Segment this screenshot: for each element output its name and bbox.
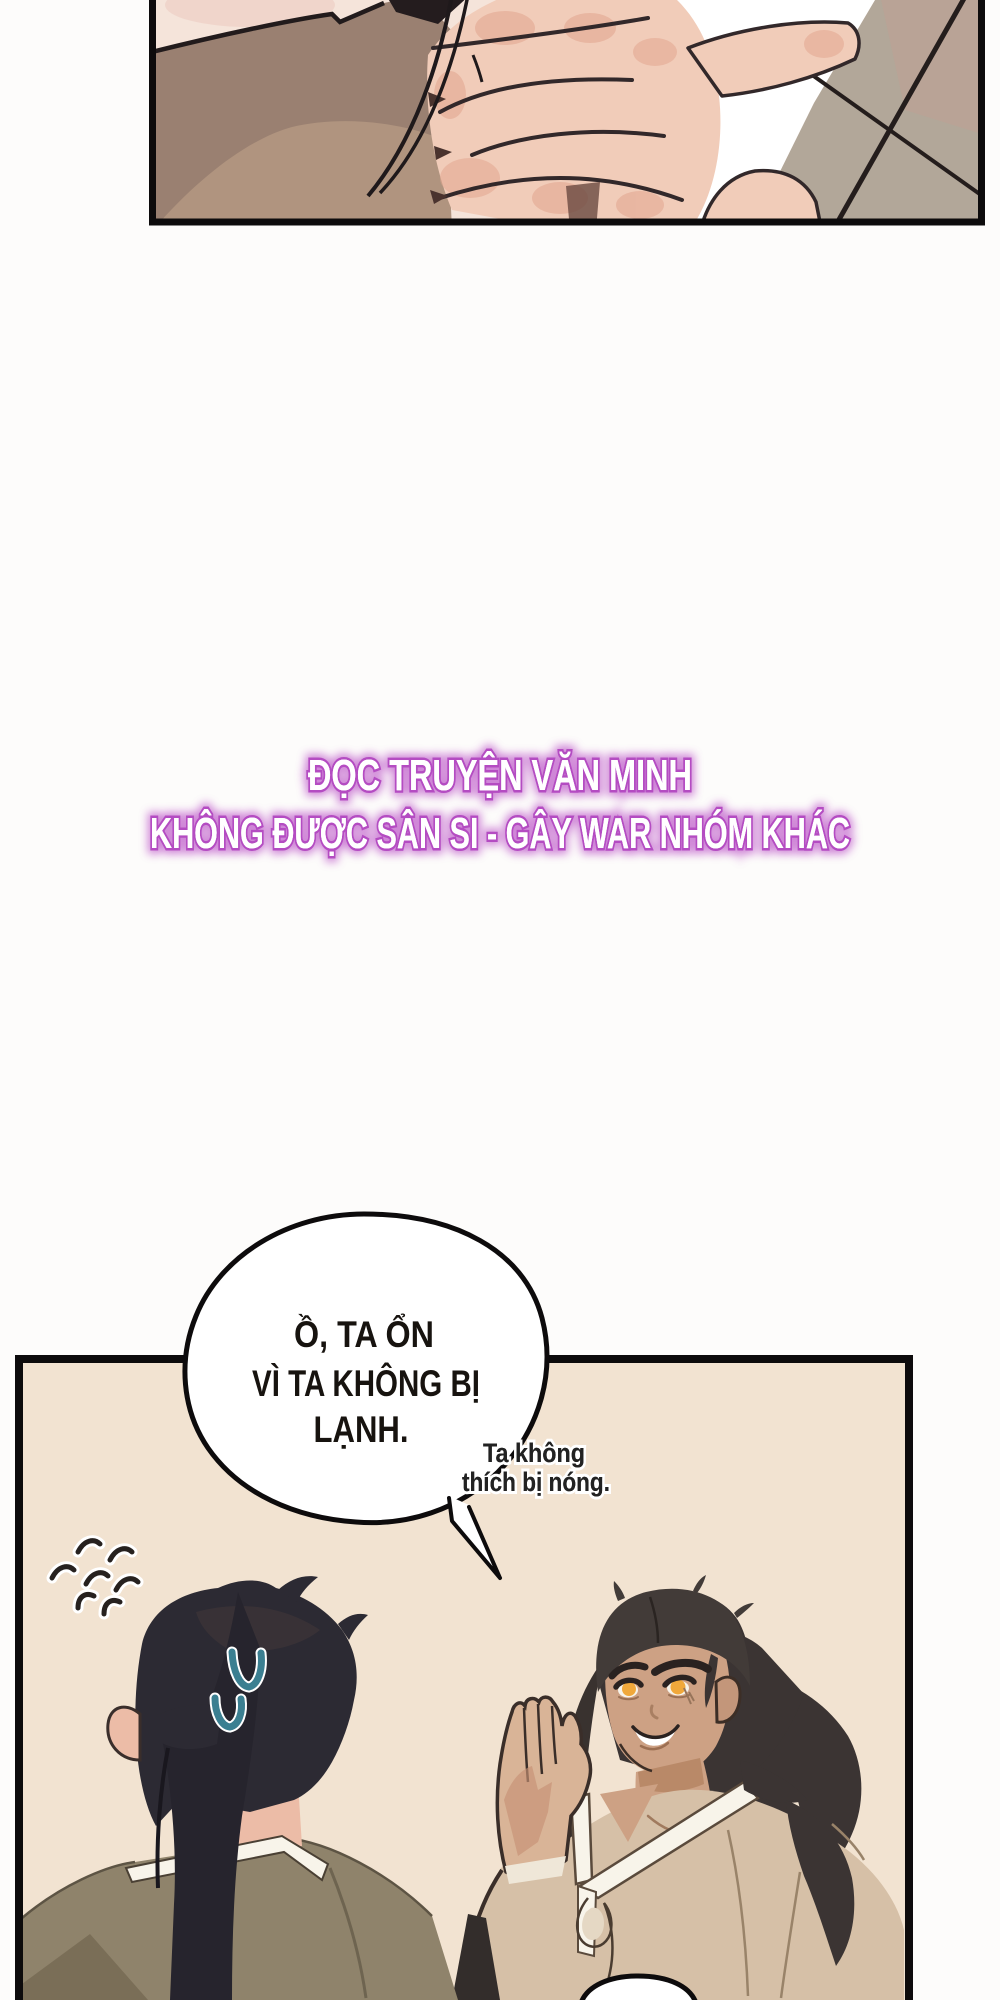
svg-text:VÌ TA KHÔNG BỊ: VÌ TA KHÔNG BỊ (252, 1362, 480, 1404)
svg-text:thích bị nóng.: thích bị nóng. (462, 1467, 610, 1497)
svg-text:KHÔNG ĐƯỢC SÂN SI - GÂY WAR NH: KHÔNG ĐƯỢC SÂN SI - GÂY WAR NHÓM KHÁC (150, 807, 850, 858)
svg-text:ĐỌC TRUYỆN VĂN MINH: ĐỌC TRUYỆN VĂN MINH (308, 750, 692, 800)
svg-text:Ồ, TA ỔN: Ồ, TA ỔN (294, 1312, 434, 1355)
svg-text:Ta không: Ta không (483, 1438, 585, 1468)
svg-text:LẠNH.: LẠNH. (314, 1409, 409, 1450)
